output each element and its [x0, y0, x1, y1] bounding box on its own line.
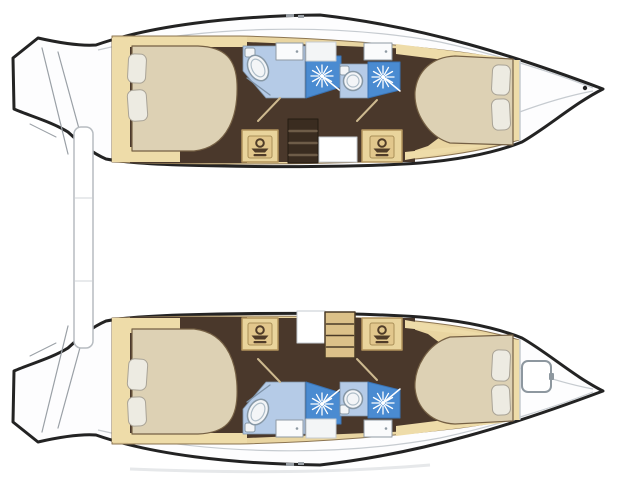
hull-shadow — [130, 465, 430, 472]
washbasin-icon — [248, 136, 272, 158]
entry-landing — [319, 137, 357, 162]
sink-fwd-drain — [385, 427, 388, 430]
icon-base — [254, 154, 267, 156]
pillow — [491, 385, 511, 416]
sink-fwd-unit — [364, 420, 392, 437]
pillow — [491, 99, 511, 131]
deck-fitting — [298, 462, 304, 465]
transom-step-line — [30, 124, 56, 137]
deck-fitting — [298, 15, 304, 18]
icon-base — [376, 341, 389, 343]
washbasin-icon — [370, 136, 394, 158]
mid-window-panel — [306, 419, 336, 438]
bow-cleat — [583, 86, 587, 90]
double-berth-aft — [132, 329, 237, 434]
icon-base — [254, 341, 267, 343]
sink-aft-unit — [276, 420, 303, 437]
transom-step-line — [30, 343, 56, 356]
toilet-fwd — [344, 390, 363, 409]
mid-window-panel — [306, 42, 336, 61]
pillow — [127, 54, 146, 84]
entry-landing — [297, 311, 325, 343]
toilet-fwd — [344, 72, 363, 91]
pillow — [491, 65, 511, 96]
companionway-steps — [288, 119, 318, 163]
pillow — [491, 350, 511, 382]
sink-aft-drain — [296, 50, 299, 53]
washbasin-icon — [248, 323, 272, 345]
floorplan — [0, 0, 640, 480]
sink-aft-unit — [276, 43, 303, 60]
washbasin-icon — [370, 323, 394, 345]
sink-fwd-drain — [385, 50, 388, 53]
deck-fitting — [286, 14, 294, 17]
bow-hatch-latch — [549, 373, 554, 380]
aft-crossbeam — [74, 127, 93, 348]
bow-hatch — [522, 361, 551, 392]
sink-aft-drain — [296, 427, 299, 430]
pillow — [127, 397, 146, 427]
pillow — [127, 358, 148, 390]
pillow — [127, 89, 148, 121]
floorplan-canvas — [0, 0, 640, 480]
double-berth-aft — [132, 46, 237, 151]
sink-fwd-unit — [364, 43, 392, 60]
deck-fitting — [286, 463, 294, 466]
icon-base — [376, 154, 389, 156]
